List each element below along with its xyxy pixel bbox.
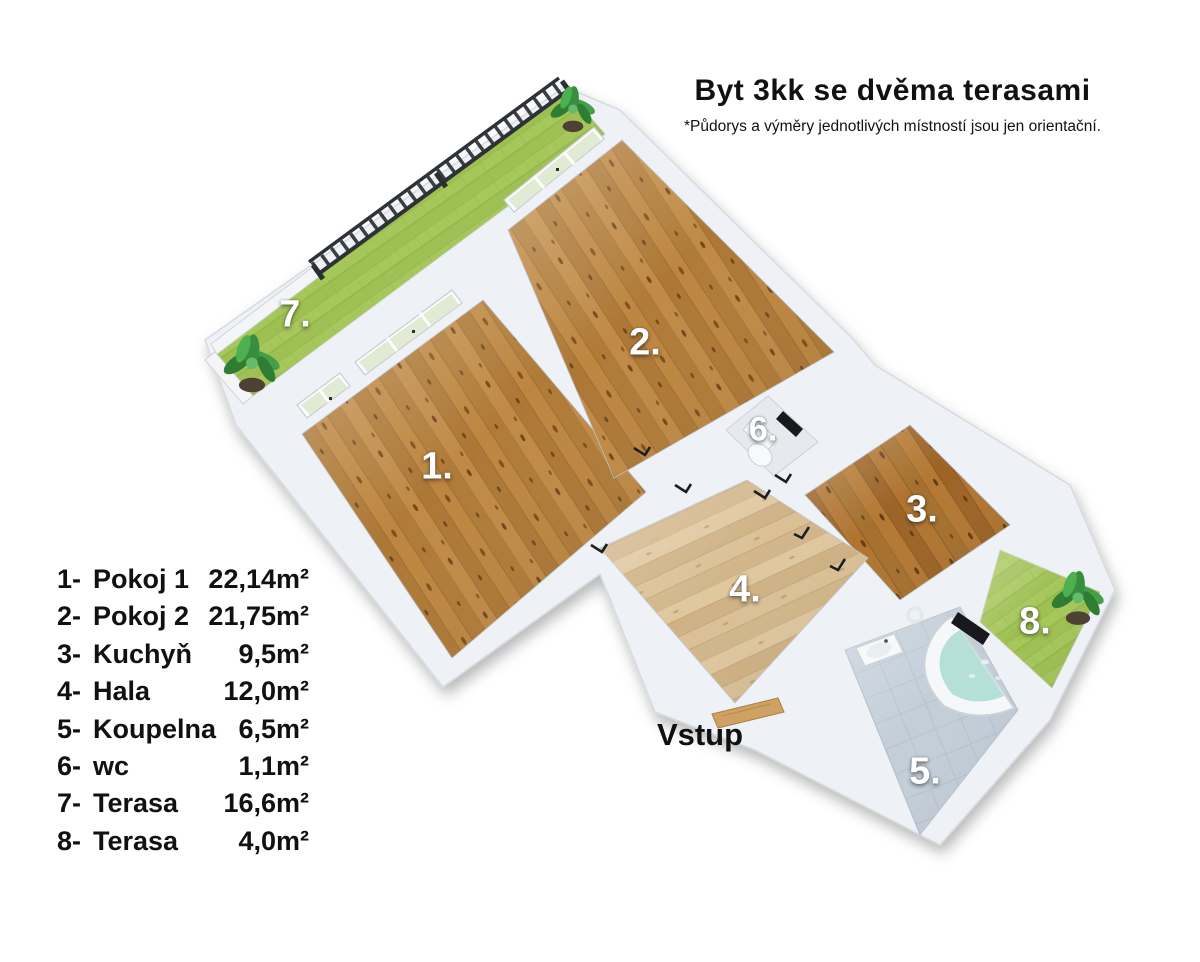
- legend-number: 7-: [57, 788, 81, 819]
- legend-item-7: 7- Terasa 16,6m²: [57, 788, 309, 825]
- legend-room-area: 12,0m²: [223, 676, 309, 707]
- legend-room-name: wc: [93, 751, 129, 782]
- legend-room-area: 1,1m²: [238, 751, 309, 782]
- legend-room-name: Terasa: [93, 788, 178, 819]
- legend: 1- Pokoj 1 22,14m² 2- Pokoj 2 21,75m² 3-…: [57, 564, 309, 863]
- legend-room-name: Hala: [93, 676, 150, 707]
- header: Byt 3kk se dvěma terasami *Půdorys a vým…: [635, 74, 1150, 136]
- legend-room-area: 22,14m²: [208, 564, 309, 595]
- legend-room-area: 4,0m²: [238, 826, 309, 857]
- legend-number: 3-: [57, 639, 81, 670]
- entrance-label: Vstup: [657, 717, 743, 753]
- legend-number: 1-: [57, 564, 81, 595]
- page-subtitle: *Půdorys a výměry jednotlivých místností…: [635, 118, 1150, 136]
- legend-item-2: 2- Pokoj 2 21,75m²: [57, 601, 309, 638]
- legend-item-5: 5- Koupelna 6,5m²: [57, 714, 309, 751]
- floorplan-page: 1. 2. 3. 4. 5. 6. 7. 8. Vstup Byt 3kk se…: [0, 0, 1200, 962]
- legend-room-name: Pokoj 1: [93, 564, 189, 595]
- legend-room-name: Terasa: [93, 826, 178, 857]
- legend-room-name: Kuchyň: [93, 639, 192, 670]
- legend-number: 6-: [57, 751, 81, 782]
- legend-item-8: 8- Terasa 4,0m²: [57, 826, 309, 863]
- legend-number: 8-: [57, 826, 81, 857]
- legend-room-area: 16,6m²: [223, 788, 309, 819]
- legend-room-area: 21,75m²: [208, 601, 309, 632]
- legend-number: 4-: [57, 676, 81, 707]
- legend-number: 5-: [57, 714, 81, 745]
- legend-item-4: 4- Hala 12,0m²: [57, 676, 309, 713]
- legend-room-name: Koupelna: [93, 714, 216, 745]
- page-title: Byt 3kk se dvěma terasami: [635, 74, 1150, 108]
- legend-room-name: Pokoj 2: [93, 601, 189, 632]
- legend-item-1: 1- Pokoj 1 22,14m²: [57, 564, 309, 601]
- legend-item-6: 6- wc 1,1m²: [57, 751, 309, 788]
- legend-number: 2-: [57, 601, 81, 632]
- legend-room-area: 9,5m²: [238, 639, 309, 670]
- legend-item-3: 3- Kuchyň 9,5m²: [57, 639, 309, 676]
- legend-room-area: 6,5m²: [238, 714, 309, 745]
